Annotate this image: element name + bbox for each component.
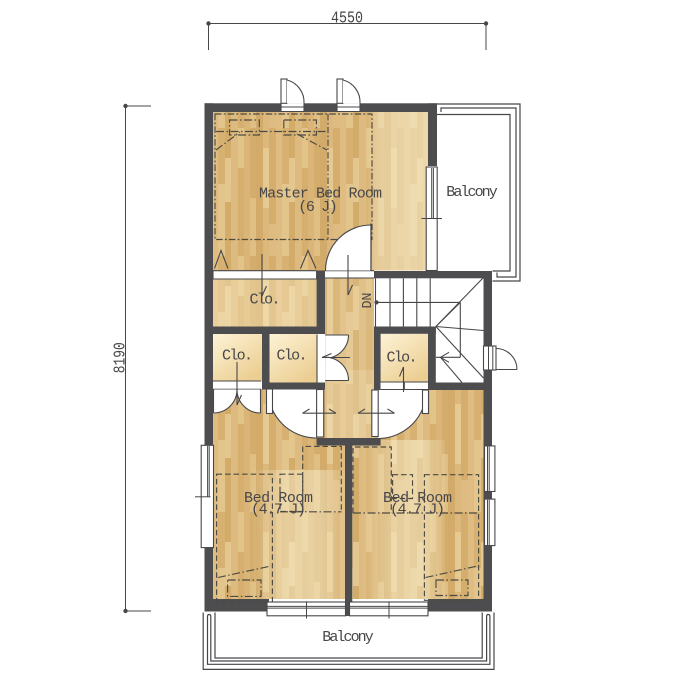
svg-text:Clo.: Clo. bbox=[277, 348, 308, 365]
svg-text:4550: 4550 bbox=[331, 10, 363, 29]
svg-text:8190: 8190 bbox=[112, 342, 131, 373]
svg-text:Balcony: Balcony bbox=[322, 629, 374, 646]
svg-text:Balcony: Balcony bbox=[446, 184, 498, 201]
svg-text:(4.7 J): (4.7 J) bbox=[251, 502, 306, 519]
svg-text:(4.7 J): (4.7 J) bbox=[390, 502, 445, 519]
svg-text:Clo.: Clo. bbox=[250, 292, 281, 309]
svg-text:Clo.: Clo. bbox=[387, 350, 418, 367]
svg-text:DN: DN bbox=[361, 293, 376, 309]
svg-text:Clo.: Clo. bbox=[222, 348, 253, 365]
svg-text:(6 J): (6 J) bbox=[298, 199, 338, 216]
